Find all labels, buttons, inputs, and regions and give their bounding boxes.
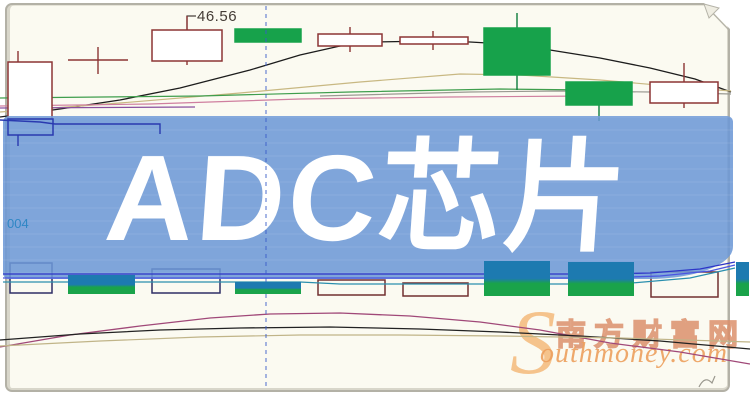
up-candle bbox=[8, 62, 52, 119]
price-flag-pointer bbox=[187, 16, 196, 30]
price-flag-label: 46.56 bbox=[197, 8, 237, 25]
banner-title: ADC芯片 bbox=[102, 137, 634, 259]
down-candle bbox=[235, 29, 301, 42]
left-axis-label: 004 bbox=[7, 216, 29, 231]
up-candle bbox=[152, 30, 222, 61]
up-candle bbox=[650, 82, 718, 103]
title-banner: ADC芯片 bbox=[3, 116, 733, 279]
up-candle bbox=[400, 37, 468, 44]
volume-bar-hollow bbox=[403, 283, 468, 296]
curve-tan-bottom bbox=[0, 335, 750, 346]
up-candle bbox=[318, 34, 382, 46]
down-candle bbox=[566, 82, 632, 105]
volume-bar-hollow bbox=[318, 280, 385, 295]
down-candle bbox=[484, 28, 550, 75]
